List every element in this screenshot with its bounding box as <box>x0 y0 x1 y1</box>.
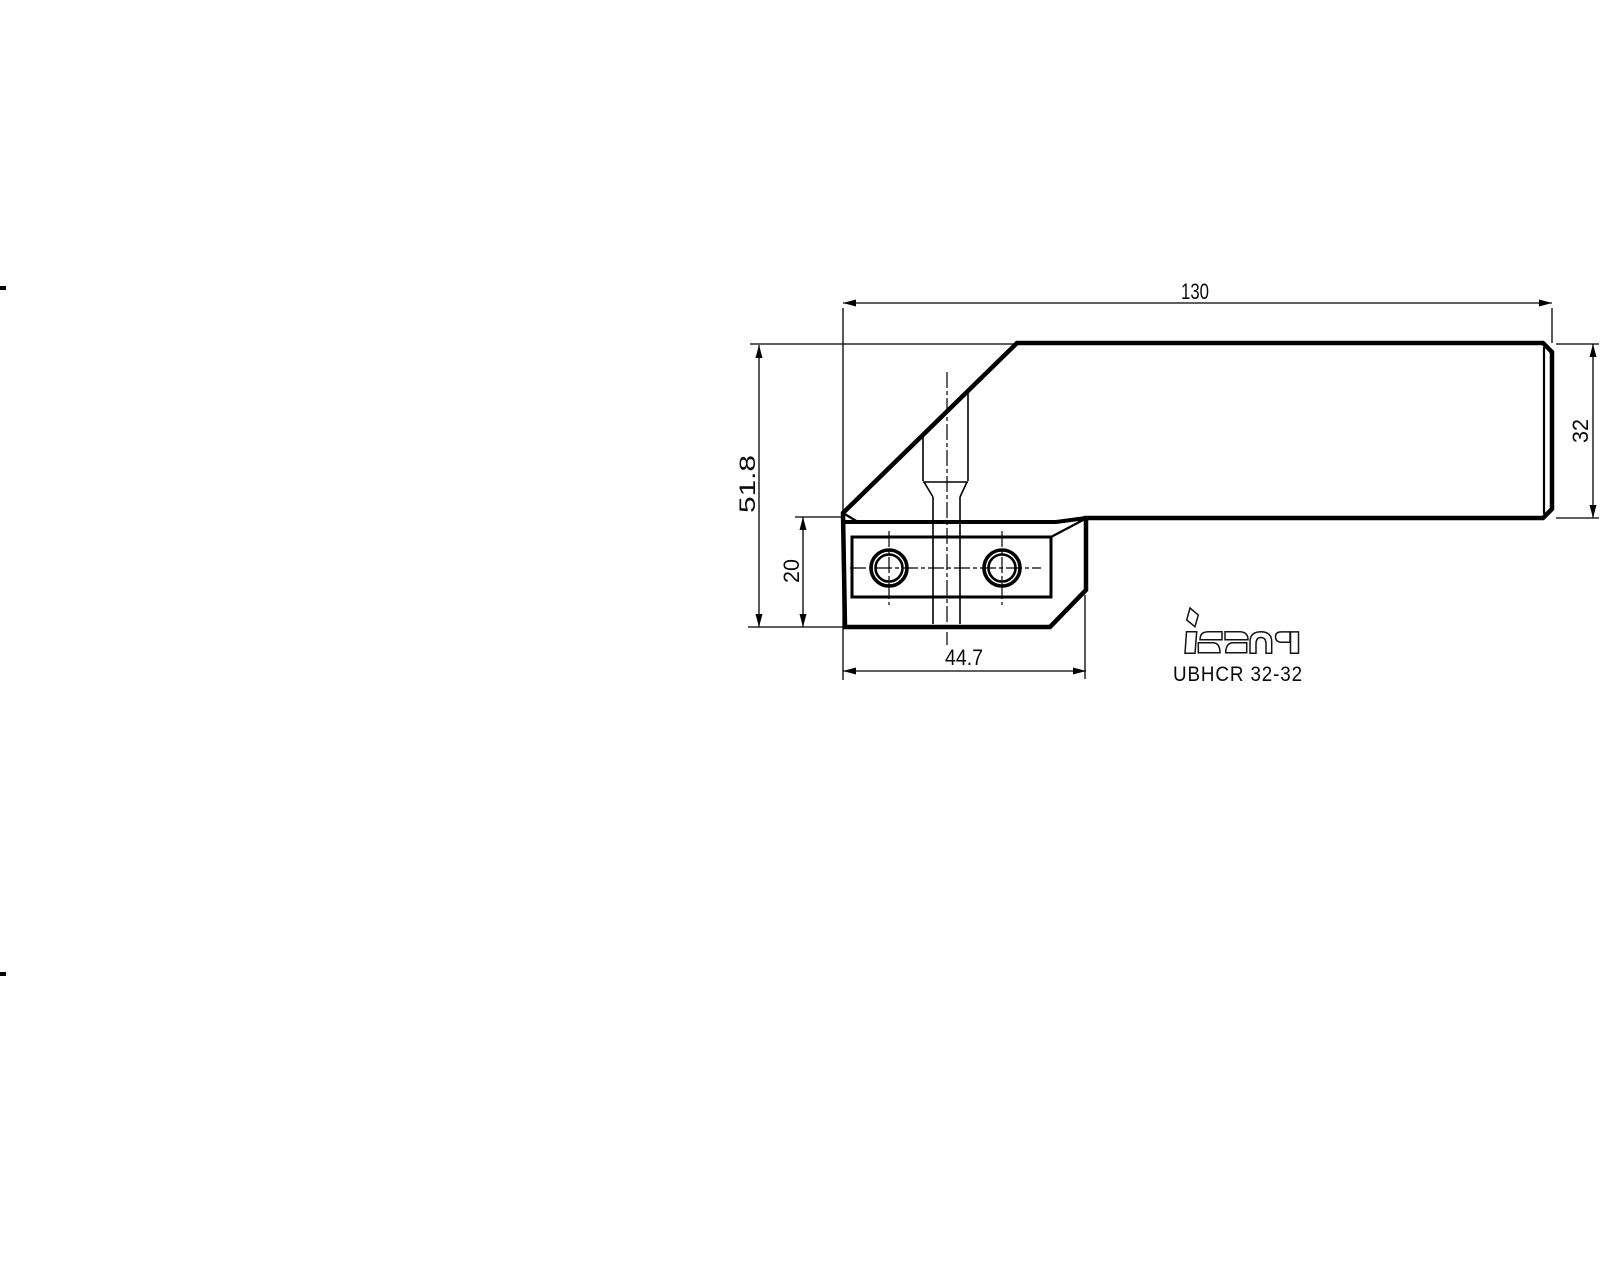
part-view <box>843 343 1552 645</box>
tool-holder-drawing: 130 51.8 20 44.7 32 <box>0 0 1600 1280</box>
dim-head-length-label: 44.7 <box>945 645 983 670</box>
product-code-label: UBHCR 32-32 <box>1173 663 1303 686</box>
dim-shank-height-label: 32 <box>1568 419 1593 443</box>
dim-overall-height-label: 51.8 <box>735 455 760 513</box>
sheet-edge-mark-top <box>0 286 6 290</box>
iscar-logo-diamond <box>1187 608 1199 627</box>
sheet-edge-mark-bottom <box>0 972 6 976</box>
dim-head-height: 20 <box>779 517 845 627</box>
part-outline <box>843 343 1552 627</box>
dim-head-height-label: 20 <box>779 559 804 583</box>
block-top-edge <box>845 518 1086 522</box>
dim-shank-height: 32 <box>1556 344 1599 518</box>
iscar-logo <box>1185 608 1299 653</box>
dim-overall-length-label: 130 <box>1181 279 1209 304</box>
dim-head-length: 44.7 <box>843 595 1086 679</box>
technical-drawing-sheet: 130 51.8 20 44.7 32 <box>0 0 1600 1280</box>
